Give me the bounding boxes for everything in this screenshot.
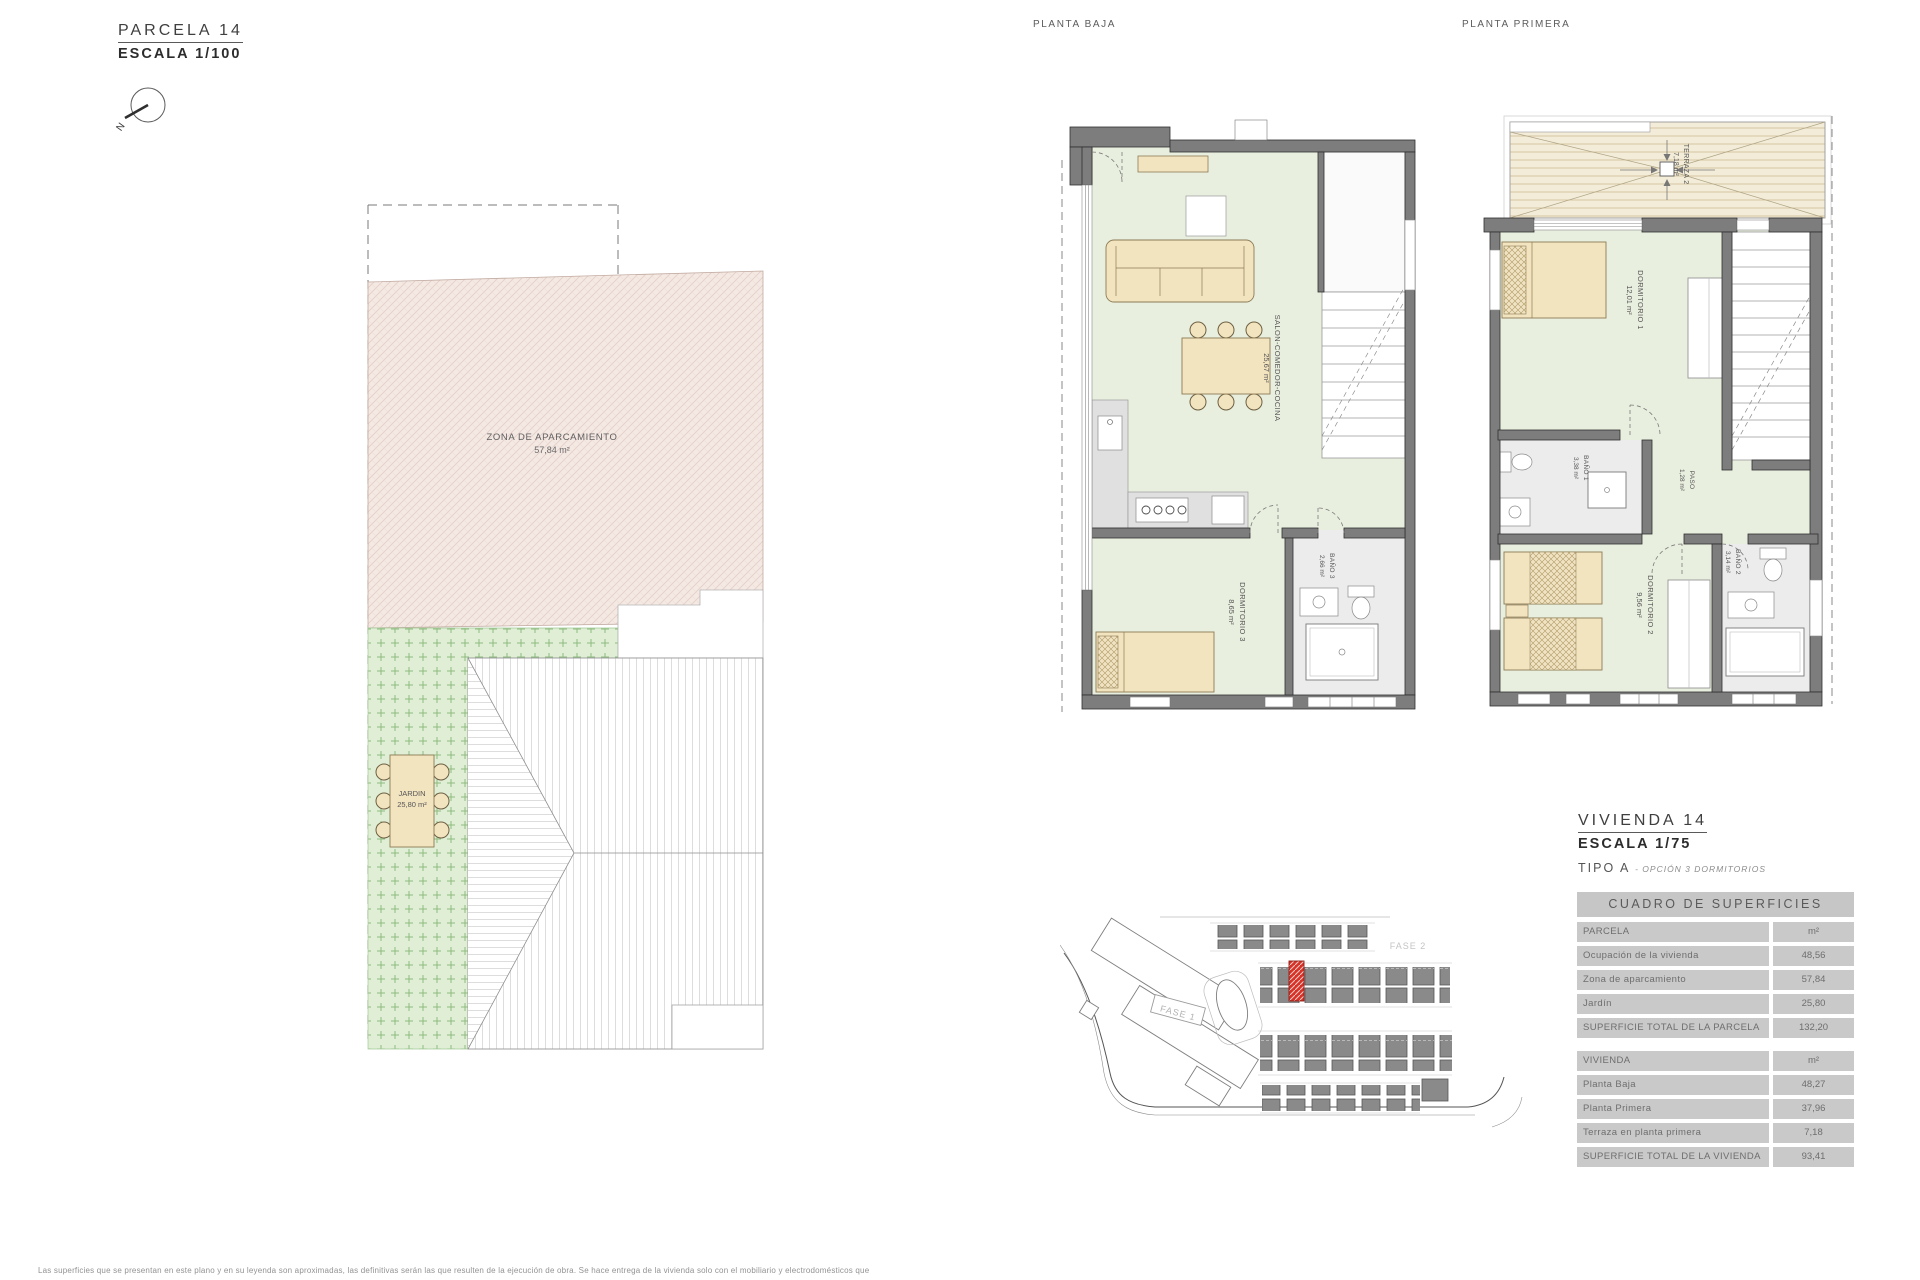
table-row: Zona de aparcamiento 57,84 [1577, 970, 1854, 990]
shower [1588, 472, 1626, 508]
toilet-tank [1760, 548, 1786, 559]
parcel-plan: ZONA DE APARCAMIENTO 57,84 m² JARDIN 25,… [360, 160, 780, 1060]
table-section-gap [1577, 1042, 1854, 1051]
roof [468, 658, 763, 1049]
plan-sheet: { "colors": { "accent_red": "#d63227", "… [0, 0, 1920, 1280]
parking-label: ZONA DE APARCAMIENTO [487, 432, 618, 443]
svg-text:2,66 m²: 2,66 m² [1318, 555, 1325, 578]
bed-dormitorio1 [1502, 242, 1606, 318]
svg-text:TERRAZA 2: TERRAZA 2 [1682, 144, 1689, 185]
svg-text:25,67 m²: 25,67 m² [1262, 353, 1271, 383]
table-row: Planta Primera 37,96 [1577, 1099, 1854, 1119]
vivienda-scale: ESCALA 1/75 [1578, 836, 1766, 852]
svg-text:PASO: PASO [1688, 471, 1695, 490]
stairs [1322, 152, 1405, 458]
svg-text:DORMITORIO 1: DORMITORIO 1 [1636, 270, 1645, 330]
tipo-detail: - OPCIÓN 3 DORMITORIOS [1635, 864, 1766, 874]
garden-table: JARDIN 25,80 m² [376, 755, 449, 847]
stairs [1732, 232, 1810, 460]
compass-north-label: N [114, 121, 127, 133]
svg-text:SALON-COMEDOR-COCINA: SALON-COMEDOR-COCINA [1273, 315, 1282, 422]
toilet-tank [1348, 586, 1374, 597]
vivienda-header: VIVIENDA 14 ESCALA 1/75 TIPO A - OPCIÓN … [1578, 812, 1766, 875]
svg-text:3,38 m²: 3,38 m² [1572, 457, 1579, 480]
svg-text:BAÑO 2: BAÑO 2 [1734, 549, 1743, 575]
toilet [1512, 454, 1532, 470]
planta-baja-title: PLANTA BAJA [1033, 19, 1116, 30]
planta-primera-title: PLANTA PRIMERA [1462, 19, 1570, 30]
vivienda-title: VIVIENDA 14 [1578, 812, 1707, 833]
site-plan: FASE 1 FASE 2 [1060, 915, 1530, 1175]
shower [1726, 628, 1804, 676]
surface-table-title: CUADRO DE SUPERFICIES [1577, 892, 1854, 917]
disclaimer-text: Las superficies que se presentan en este… [38, 1266, 869, 1275]
svg-text:BAÑO 1: BAÑO 1 [1582, 455, 1591, 481]
compass-needle [125, 105, 148, 118]
table-row: Planta Baja 48,27 [1577, 1075, 1854, 1095]
svg-text:8,65 m²: 8,65 m² [1227, 599, 1236, 625]
svg-text:DORMITORIO 2: DORMITORIO 2 [1646, 575, 1655, 635]
table-row: Ocupación de la vivienda 48,56 [1577, 946, 1854, 966]
fridge [1212, 496, 1244, 524]
north-compass-icon: N [112, 82, 186, 140]
parking-area-value: 57,84 m² [534, 445, 570, 455]
parcel-scale: ESCALA 1/100 [118, 46, 243, 62]
svg-text:12,01 m²: 12,01 m² [1625, 285, 1634, 315]
kitchen-sink [1098, 416, 1122, 450]
svg-text:9,56 m²: 9,56 m² [1635, 592, 1644, 618]
tipo-line: TIPO A - OPCIÓN 3 DORMITORIOS [1578, 861, 1766, 875]
garden-area-value: 25,80 m² [397, 800, 427, 809]
svg-text:7,18 m²: 7,18 m² [1672, 152, 1679, 176]
table-row-total: SUPERFICIE TOTAL DE LA PARCELA 132,20 [1577, 1018, 1854, 1038]
table-row: Jardín 25,80 [1577, 994, 1854, 1014]
parcel-header: PARCELA 14 ESCALA 1/100 [118, 22, 243, 62]
fase2-label: FASE 2 [1390, 941, 1427, 951]
svg-text:1,28 m²: 1,28 m² [1678, 469, 1685, 492]
planta-baja-plan: SALON-COMEDOR-COCINA 25,67 m² DORMITORIO… [1060, 100, 1430, 720]
toilet [1352, 597, 1370, 619]
parcel-title: PARCELA 14 [118, 22, 243, 43]
table-row-total: SUPERFICIE TOTAL DE LA VIVIENDA 93,41 [1577, 1147, 1854, 1167]
table-row: VIVIENDA m² [1577, 1051, 1854, 1071]
svg-text:DORMITORIO 3: DORMITORIO 3 [1238, 582, 1247, 642]
terrace [1504, 116, 1831, 224]
sink [1728, 592, 1774, 618]
svg-text:BAÑO 3: BAÑO 3 [1328, 553, 1337, 579]
shower [1306, 624, 1378, 680]
bed-dormitorio3 [1096, 632, 1214, 692]
sink [1500, 498, 1530, 526]
sideboard [1138, 156, 1208, 172]
svg-text:3,14 m²: 3,14 m² [1724, 551, 1731, 574]
parking-area: ZONA DE APARCAMIENTO 57,84 m² [368, 271, 763, 628]
coffee-table [1186, 196, 1226, 236]
toilet [1764, 559, 1782, 581]
tipo-label: TIPO A [1578, 861, 1630, 875]
dining-table [1182, 322, 1270, 410]
terrace-drain [1660, 162, 1674, 176]
sofa [1106, 240, 1254, 302]
sink [1300, 588, 1338, 616]
table-row: PARCELA m² [1577, 922, 1854, 942]
surface-table: CUADRO DE SUPERFICIES PARCELA m² Ocupaci… [1577, 892, 1854, 1171]
planta-primera-plan: TERRAZA 2 7,18 m² DORMITORIO 1 12,01 m² … [1470, 100, 1860, 720]
highlighted-unit [1289, 961, 1304, 1001]
nightstand [1506, 605, 1528, 617]
toilet-tank [1500, 452, 1511, 472]
table-row: Terraza en planta primera 7,18 [1577, 1123, 1854, 1143]
garden-label: JARDIN [398, 789, 425, 798]
